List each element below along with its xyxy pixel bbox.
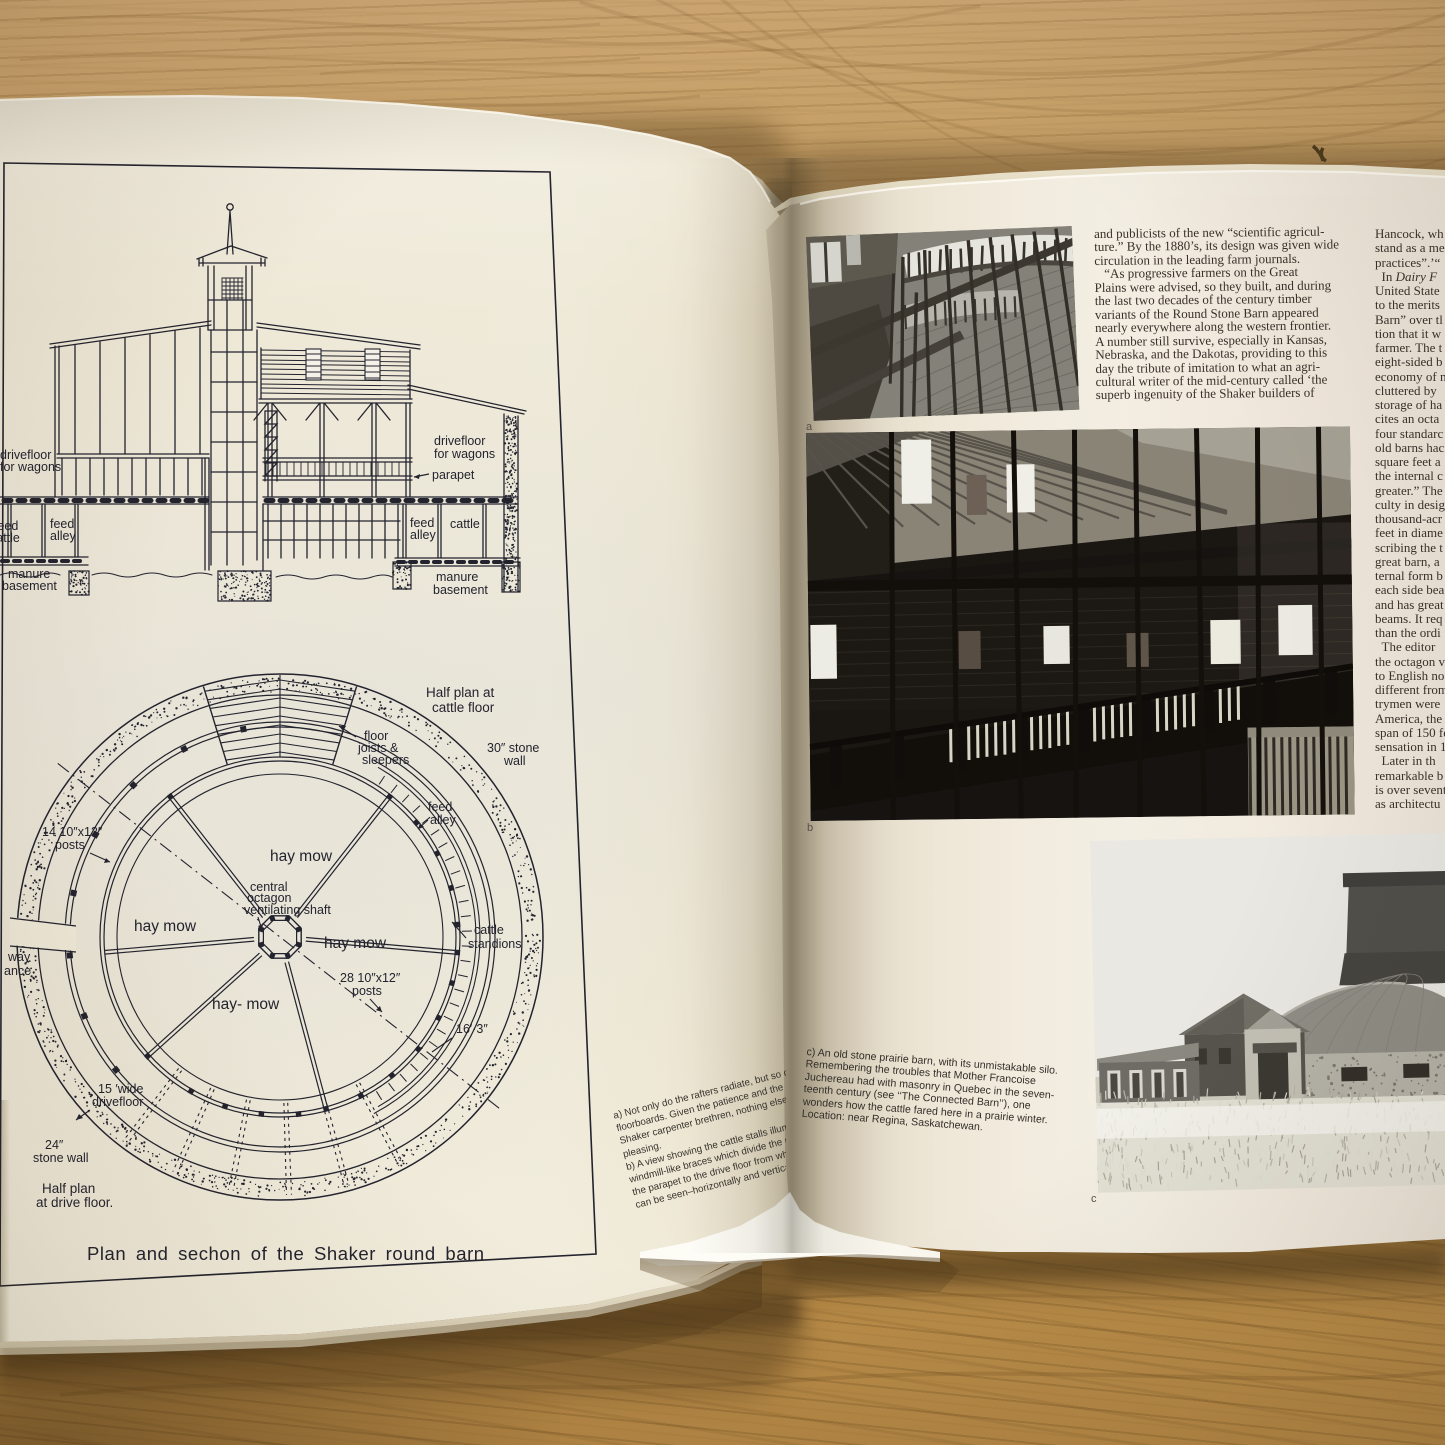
svg-text:28 10″x12″: 28 10″x12″ [340, 971, 401, 985]
svg-text:for wagons: for wagons [0, 460, 61, 474]
svg-text:hay mow: hay mow [270, 848, 333, 865]
svg-text:alley: alley [410, 528, 436, 542]
svg-text:24″: 24″ [45, 1138, 64, 1152]
svg-text:at drive floor.: at drive floor. [36, 1195, 113, 1210]
svg-text:hay- mow: hay- mow [212, 996, 280, 1013]
svg-text:sleepers: sleepers [362, 753, 409, 767]
svg-text:Plan and sechon of the Shaker: Plan and sechon of the Shaker round barn [87, 1243, 485, 1264]
svg-text:cattle: cattle [450, 517, 480, 531]
svg-text:posts: posts [55, 838, 85, 852]
svg-text:alley: alley [430, 813, 456, 827]
svg-text:for wagons: for wagons [434, 447, 495, 461]
svg-text:manure: manure [436, 570, 478, 584]
svg-text:ventilating shaft: ventilating shaft [244, 903, 331, 917]
svg-text:basement: basement [433, 583, 488, 597]
svg-text:drivefloor: drivefloor [434, 434, 485, 448]
svg-text:hay mow: hay mow [134, 918, 197, 935]
svg-text:standions: standions [468, 937, 522, 951]
svg-text:Half plan at: Half plan at [426, 685, 495, 700]
svg-text:basement: basement [2, 579, 57, 593]
svg-text:30″ stone: 30″ stone [487, 741, 539, 755]
svg-text:stone wall: stone wall [33, 1151, 89, 1165]
svg-text:alley: alley [50, 529, 76, 543]
svg-text:14 10″x12″: 14 10″x12″ [42, 825, 103, 839]
svg-text:feed: feed [428, 800, 452, 814]
svg-text:parapet: parapet [432, 468, 475, 482]
svg-text:hay mow: hay mow [324, 935, 387, 952]
svg-text:16′·3″: 16′·3″ [456, 1022, 488, 1036]
svg-text:ance: ance [4, 964, 31, 978]
svg-text:cattle: cattle [0, 531, 20, 545]
svg-text:drivefloor: drivefloor [92, 1095, 143, 1109]
svg-text:cattle: cattle [474, 923, 504, 937]
svg-text:way: way [7, 950, 31, 964]
svg-text:Half plan: Half plan [42, 1181, 95, 1196]
svg-text:cattle floor: cattle floor [432, 700, 495, 715]
svg-text:posts: posts [352, 984, 382, 998]
svg-text:wall: wall [503, 754, 526, 768]
svg-text:15 ′wide: 15 ′wide [98, 1082, 143, 1096]
